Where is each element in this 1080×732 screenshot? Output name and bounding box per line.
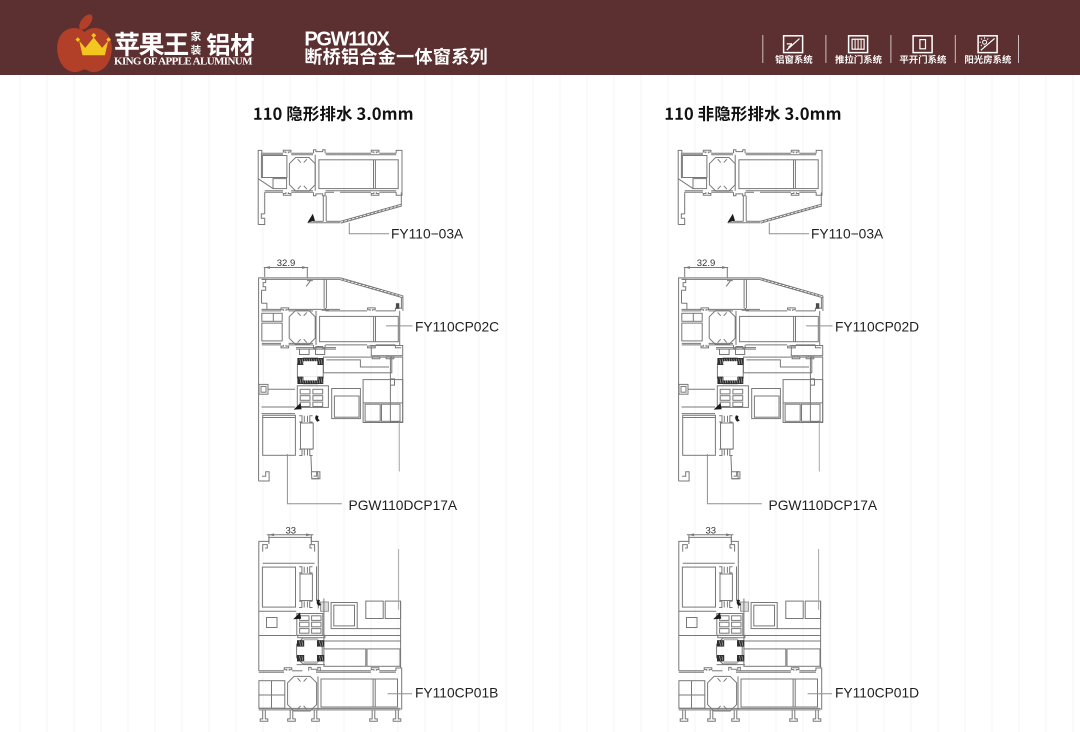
svg-text:FY110CP02D: FY110CP02D bbox=[835, 320, 919, 335]
svg-text:33: 33 bbox=[286, 526, 297, 537]
svg-text:PGW110DCP17A: PGW110DCP17A bbox=[349, 498, 458, 513]
svg-text:PGW110DCP17A: PGW110DCP17A bbox=[769, 498, 878, 513]
svg-text:FY110CP01D: FY110CP01D bbox=[835, 685, 919, 700]
svg-text:FY110CP02C: FY110CP02C bbox=[415, 320, 499, 335]
svg-text:FY110CP01B: FY110CP01B bbox=[415, 685, 498, 700]
svg-text:FY110−03A: FY110−03A bbox=[391, 227, 464, 242]
svg-text:FY110−03A: FY110−03A bbox=[811, 227, 884, 242]
svg-text:32.9: 32.9 bbox=[277, 258, 296, 269]
